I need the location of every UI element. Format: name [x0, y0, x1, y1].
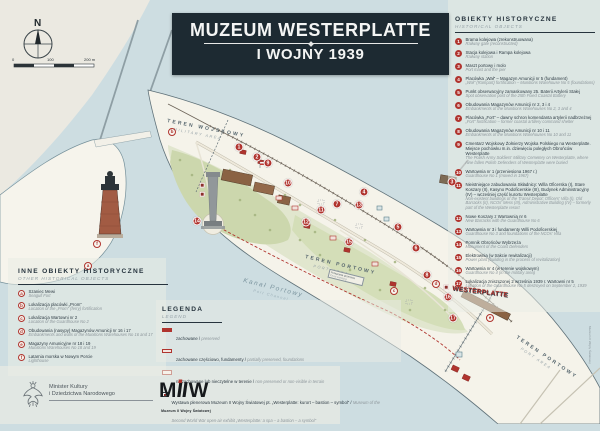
ministry-text: Minister Kultury i Dziedzictwa Narodoweg…: [49, 380, 153, 408]
object-label-en: Location of the „Prom” (ferry) fortifica…: [29, 307, 103, 312]
object-text: Nowe Koszary z Wartownią nr 6 New Barrac…: [466, 214, 540, 224]
legend-text: zachowane / preserved: [176, 327, 220, 345]
legend-heading-pl: LEGENDA: [162, 306, 394, 313]
object-number-badge: 12: [455, 215, 462, 222]
map-credit: Muzeum II Wojny Światowej: [588, 326, 593, 364]
object-number-badge: 4: [455, 76, 462, 83]
object-letter-badge: c: [18, 315, 25, 322]
object-letter-badge: a: [18, 290, 25, 297]
historical-object-item: 4 Placówka „Wał” – Magazyn Amunicji nr 5…: [455, 76, 595, 86]
object-text: Wartownia nr 1 (przeniesiona 1967 r.) Gu…: [466, 169, 538, 179]
object-label-en: Seagull Fort: [29, 294, 56, 299]
object-label-en: „Wał” (Rampart) fortification – Munition…: [466, 81, 595, 86]
object-number-badge: 16: [455, 267, 462, 274]
object-label-en: Embankments and walls of the Munitions W…: [29, 333, 153, 338]
title-banner: MUZEUM WESTERPLATTE I WOJNY 1939: [172, 13, 449, 75]
other-object-item: e Magazyny Amunicyjne nr 18 i 19 Munitio…: [18, 341, 168, 351]
legend-item: zachowane częściowo, fundamenty / partia…: [162, 348, 394, 366]
object-text: Punkt obserwacyjny zamaskowany 25. Bater…: [466, 89, 580, 99]
object-label-en: Munitions Warehouses No 18 and 19: [29, 346, 96, 351]
legend-heading-en: LEGEND: [162, 314, 394, 319]
object-text: Lokalizacja placówki „Prom” Location of …: [29, 302, 103, 312]
object-number-badge: 7: [455, 115, 462, 122]
miw-logo-icon: M W: [159, 377, 213, 403]
miw-logo-block: M W Muzeum II Wojny Światowej: [156, 377, 216, 413]
ministry-line1: Minister Kultury: [49, 384, 153, 391]
object-text: Obudowania Magazynów Amunicji nr 10 i 11…: [466, 128, 572, 138]
object-text: Lokalizacja zniszczonej 2 września 1939 …: [466, 279, 587, 289]
historical-object-item: 15 Elektrownia (w trakcie rewitalizacji)…: [455, 253, 595, 263]
object-number-badge: 3: [455, 63, 462, 70]
object-label-en: Lighthouse: [29, 359, 93, 364]
object-label-en: Embankments of the Munitions Warehouses …: [466, 107, 572, 112]
svg-text:W: W: [189, 379, 209, 402]
historical-object-item: 5 Punkt obserwacyjny zamaskowany 25. Bat…: [455, 89, 595, 99]
object-number-badge: 13: [455, 228, 462, 235]
eagle-icon: [22, 380, 44, 408]
legend-item: zachowane / preserved: [162, 327, 394, 345]
object-number-badge: 9: [455, 141, 462, 148]
object-label-en: Railway station: [466, 55, 531, 60]
object-label-en: Guardhouse No 3 and foundations of the N…: [466, 232, 562, 237]
historical-object-item: 2 Stacja kolejowa i Rampa kolejowa Railw…: [455, 50, 595, 60]
historical-object-item: 7 Placówka „Fort” – dawny schron komenda…: [455, 115, 595, 125]
object-number-badge: 10: [455, 169, 462, 176]
object-label-en: Spot observation post of the 25th Fixed …: [466, 94, 580, 99]
other-object-item: c Lokalizacja Wartowni nr 2 Location of …: [18, 315, 168, 325]
ministry-rule: [49, 400, 153, 401]
object-number-badge: 17: [455, 280, 462, 287]
heading-rule: [18, 284, 168, 285]
ministry-logo-block: Minister Kultury i Dziedzictwa Narodoweg…: [22, 380, 153, 408]
legend-label-pl: zachowane częściowo, fundamenty /: [176, 357, 247, 362]
object-letter-badge: e: [18, 341, 25, 348]
object-label-en: Guardhouse No 1 (moved in 1967): [466, 174, 538, 179]
other-object-item: d Obudowania (nasypy) Magazynów Amunicji…: [18, 328, 168, 338]
legend-swatch: [162, 349, 172, 354]
compass-north-label: N: [34, 18, 41, 29]
object-label-en: New Barracks with the Guardhouse No 6: [466, 219, 540, 224]
object-text: Nieistniejące zabudowania Składnicy: Wil…: [466, 182, 596, 211]
title-divider: [204, 43, 418, 44]
object-label-en: Location of the Guardhouse No 5 destroye…: [466, 284, 587, 289]
object-letter-badge: b: [18, 302, 25, 309]
object-number-badge: 5: [455, 89, 462, 96]
object-label-en: Port mast and the pier: [466, 68, 506, 73]
object-letter-badge: d: [18, 328, 25, 335]
object-text: Wartownia nr 4 (w terenie wojskowym) Gua…: [466, 266, 539, 276]
object-text: Cmentarz Wojskowy Żołnierzy Wojska Polsk…: [466, 141, 596, 166]
legend-label-en: partially preserved, foundations: [247, 357, 304, 362]
object-label-en: Non-existent buildings of the Transit De…: [466, 197, 596, 211]
historical-object-item: 10 Wartownia nr 1 (przeniesiona 1967 r.)…: [455, 169, 595, 179]
historical-object-item: 1 Brama kolejowa (zrekonstruowana) Railw…: [455, 37, 595, 47]
other-object-item: a Szaniec Mewi Seagull Fort: [18, 289, 168, 299]
heading-rule: [455, 32, 595, 33]
legend-label-pl: zachowane /: [176, 336, 201, 341]
historical-object-item: 12 Nowe Koszary z Wartownią nr 6 New Bar…: [455, 214, 595, 224]
historical-object-item: 9 Cmentarz Wojskowy Żołnierzy Wojska Pol…: [455, 141, 595, 166]
object-number-badge: 1: [455, 38, 462, 45]
object-text: Wartownia nr 3 i fundamenty Willi Podofi…: [466, 227, 562, 237]
historical-object-item: 11 Nieistniejące zabudowania Składnicy: …: [455, 182, 595, 211]
object-label-en: Monument of the Coast Defenders: [466, 245, 529, 250]
historical-object-item: 14 Pomnik Obrońców Wybrzeża Monument of …: [455, 240, 595, 250]
object-number-badge: 8: [455, 128, 462, 135]
object-label-en: Location of the Guardhouse No 2: [29, 320, 89, 325]
legend-swatch: [162, 370, 172, 375]
object-label-en: „Fort” fortification – former coastal ar…: [466, 120, 592, 125]
historical-objects-section: OBIEKTY HISTORYCZNE HISTORICAL OBJECTS 1…: [455, 16, 595, 292]
object-label-en: Guardhouse No 4 (in the military area): [466, 271, 539, 276]
page-title-line1: MUZEUM WESTERPLATTE: [172, 20, 449, 40]
historical-objects-heading-en: HISTORICAL OBJECTS: [455, 24, 595, 29]
historical-object-item: 3 Maszt portowy i molo Port mast and the…: [455, 63, 595, 73]
object-text: Obudowania Magazynów Amunicji nr 2, 3 i …: [466, 102, 572, 112]
object-text: Placówka „Wał” – Magazyn Amunicji nr 5 (…: [466, 76, 595, 86]
page-title-line2: I WOJNY 1939: [172, 46, 449, 64]
other-objects-heading-pl: INNE OBIEKTY HISTORYCZNE: [18, 268, 168, 275]
object-label-en: Railway gate (reconstructed): [466, 42, 533, 47]
legend-label-en: preserved: [201, 336, 219, 341]
object-label-pl: Nieistniejące zabudowania Składnicy: Wil…: [466, 182, 596, 197]
object-text: Maszt portowy i molo Port mast and the p…: [466, 63, 506, 73]
object-text: Pomnik Obrońców Wybrzeża Monument of the…: [466, 240, 529, 250]
object-label-pl: Cmentarz Wojskowy Żołnierzy Wojska Polsk…: [466, 141, 596, 156]
object-text: Szaniec Mewi Seagull Fort: [29, 289, 56, 299]
legend-label-en: non-preserved or non-visible in terrain: [255, 379, 324, 384]
object-number-badge: 15: [455, 254, 462, 261]
historical-object-item: 13 Wartownia nr 3 i fundamenty Willi Pod…: [455, 227, 595, 237]
object-text: Obudowania (nasypy) Magazynów Amunicji n…: [29, 328, 153, 338]
historical-objects-heading-pl: OBIEKTY HISTORYCZNE: [455, 16, 595, 23]
object-number-badge: 2: [455, 50, 462, 57]
heading-rule: [162, 322, 222, 323]
object-label-en: Power plant (building in the process of …: [466, 258, 561, 263]
scale-100: 100: [47, 57, 54, 62]
object-text: Elektrownia (w trakcie rewitalizacji) Po…: [466, 253, 561, 263]
object-letter-badge: f: [18, 354, 25, 361]
object-text: Lokalizacja Wartowni nr 2 Location of th…: [29, 315, 89, 325]
historical-object-item: 6 Obudowania Magazynów Amunicji nr 2, 3 …: [455, 102, 595, 112]
historical-object-item: 17 Lokalizacja zniszczonej 2 września 19…: [455, 279, 595, 289]
object-text: Stacja kolejowa i Rampa kolejowa Railway…: [466, 50, 531, 60]
scale-200: 200 m: [84, 57, 96, 62]
legend-swatch: [162, 328, 172, 333]
object-number-badge: 6: [455, 102, 462, 109]
object-label-en: The Polish Army Soldiers' Military Cemet…: [466, 156, 596, 166]
svg-text:M: M: [159, 379, 176, 402]
object-text: Placówka „Fort” – dawny schron komendant…: [466, 115, 592, 125]
other-object-item: f Latarnia morska w Nowym Porcie Lightho…: [18, 354, 168, 364]
object-number-badge: 11: [455, 182, 462, 189]
object-label-en: Embankments of the Munitions Warehouses …: [466, 133, 572, 138]
object-text: Brama kolejowa (zrekonstruowana) Railway…: [466, 37, 533, 47]
other-objects-heading-en: OTHER HISTORICAL OBJECTS: [18, 276, 168, 281]
other-object-item: b Lokalizacja placówki „Prom” Location o…: [18, 302, 168, 312]
object-text: Latarnia morska w Nowym Porcie Lighthous…: [29, 354, 93, 364]
other-objects-section: INNE OBIEKTY HISTORYCZNE OTHER HISTORICA…: [18, 268, 168, 367]
legend-text: zachowane częściowo, fundamenty / partia…: [176, 348, 304, 366]
miw-caption: Muzeum II Wojny Światowej: [156, 409, 216, 413]
historical-object-item: 8 Obudowania Magazynów Amunicji nr 10 i …: [455, 128, 595, 138]
object-text: Magazyny Amunicyjne nr 18 i 19 Munitions…: [29, 341, 96, 351]
ministry-line2: i Dziedzictwa Narodowego: [49, 391, 153, 398]
object-number-badge: 14: [455, 241, 462, 248]
historical-object-item: 16 Wartownia nr 4 (w terenie wojskowym) …: [455, 266, 595, 276]
